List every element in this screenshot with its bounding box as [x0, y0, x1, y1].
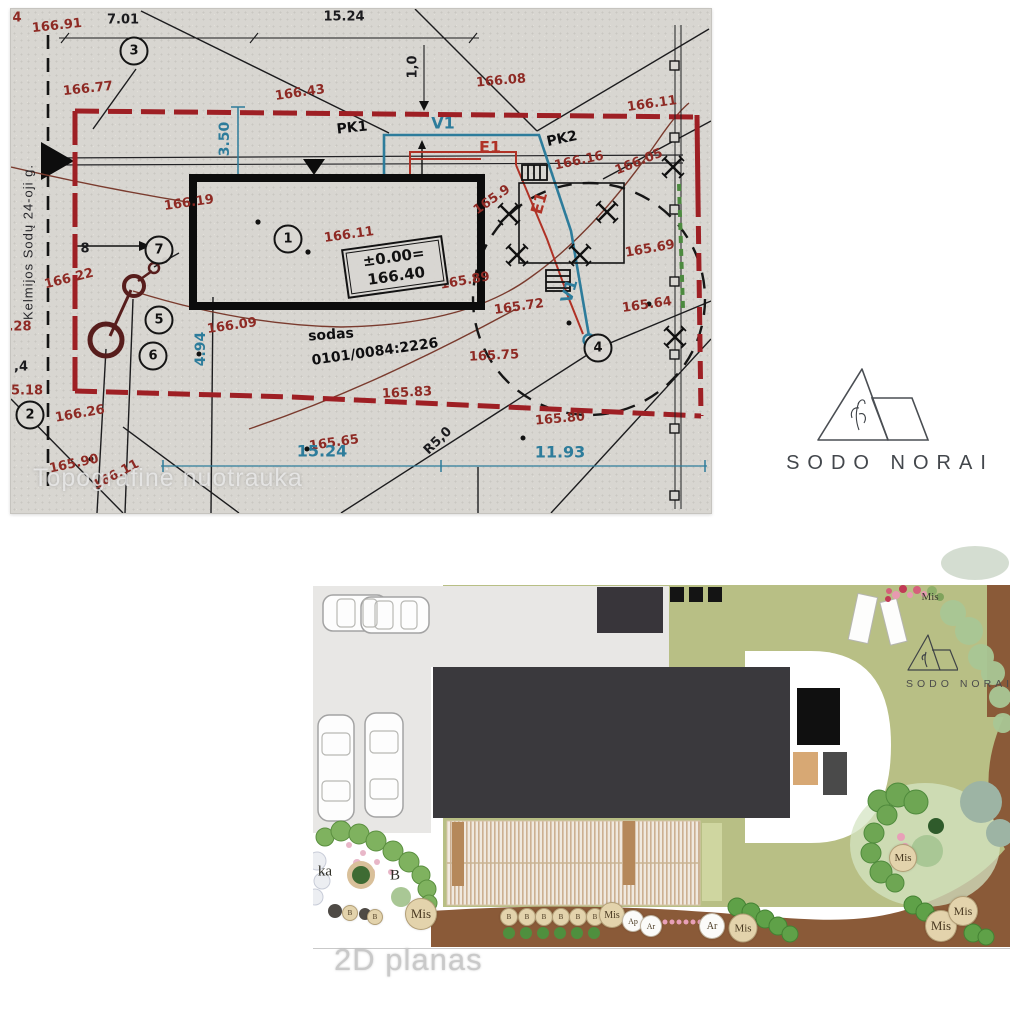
topographic-survey-panel: 4166.917.0115.24166.77166.43166.08166.11…	[10, 8, 712, 514]
plan-plant-circle: Mis	[729, 914, 758, 943]
survey-point-7: 7	[145, 236, 174, 265]
survey-label: 4.94	[193, 332, 209, 367]
plan-plant-circle: B	[569, 908, 587, 926]
plan-logo-text: SODO NORAI	[906, 678, 1010, 690]
brand-logo: SODO NORAI	[775, 352, 1005, 480]
survey-watermark: Topografinė nuotrauka	[33, 464, 303, 493]
plan-plant-circle: B	[552, 908, 570, 926]
survey-point-2: 2	[16, 401, 45, 430]
plan-plant-label: B	[390, 868, 400, 885]
level-line1: ±0.00=	[362, 244, 426, 271]
plan-plant-circle: Mis	[948, 896, 978, 926]
plan-plant-circle: Ar	[640, 915, 662, 937]
plan-graphics	[313, 545, 1010, 948]
survey-point-4: 4	[584, 334, 613, 363]
survey-label: 7.01	[107, 13, 139, 28]
survey-label: 165.75	[469, 347, 520, 365]
survey-label: PK1	[336, 118, 368, 137]
plan-plant-circle: B	[500, 908, 518, 926]
survey-point-1: 1	[274, 225, 303, 254]
brand-logo-text: SODO NORAI	[775, 452, 1005, 475]
plan-plant-circle: B	[535, 908, 553, 926]
plan-logo: SODO NORAI	[898, 625, 1010, 695]
survey-point-5: 5	[145, 306, 174, 335]
tent-logo-icon	[775, 352, 1005, 452]
plan-plant-circle: Mis	[405, 898, 437, 930]
plan-tent-logo-icon	[898, 625, 958, 675]
survey-label: ,4	[14, 360, 28, 375]
plan-plant-label: ka	[318, 864, 332, 881]
survey-label: E1	[479, 138, 501, 157]
landscape-plan-panel: MiskaBBBMisBBBBBBMisApArArMisMisMisMis S…	[313, 545, 1010, 949]
survey-point-3: 3	[120, 37, 149, 66]
plan-plant-circle: Mis	[889, 844, 917, 872]
survey-label: 8	[80, 242, 89, 257]
survey-label: sodas	[308, 325, 355, 344]
plan-plant-circle: B	[518, 908, 536, 926]
plan-plant-circle: B	[367, 909, 383, 925]
survey-label: .28	[10, 320, 32, 335]
plan-plant-circle: Ar	[699, 913, 725, 939]
plan-plant-label: Mis	[921, 591, 938, 603]
plan-plant-circle: Mis	[599, 902, 625, 928]
survey-label: 4	[12, 11, 21, 26]
survey-label: Kelmijos Sodų 24-oji g.	[21, 164, 36, 320]
survey-label: 11.93	[535, 443, 586, 462]
survey-label: 3.50	[217, 122, 233, 157]
plan-plant-circle: B	[342, 905, 358, 921]
level-line2: 166.40	[366, 263, 426, 290]
survey-label: 165.83	[382, 384, 433, 402]
plan-watermark: 2D planas	[334, 942, 483, 978]
survey-label: 15.24	[297, 442, 348, 461]
survey-label: 1,0	[406, 55, 421, 78]
survey-point-6: 6	[139, 342, 168, 371]
survey-label: 15.24	[323, 10, 364, 25]
survey-label: 5.18	[11, 384, 43, 399]
survey-label: V1	[431, 114, 455, 133]
